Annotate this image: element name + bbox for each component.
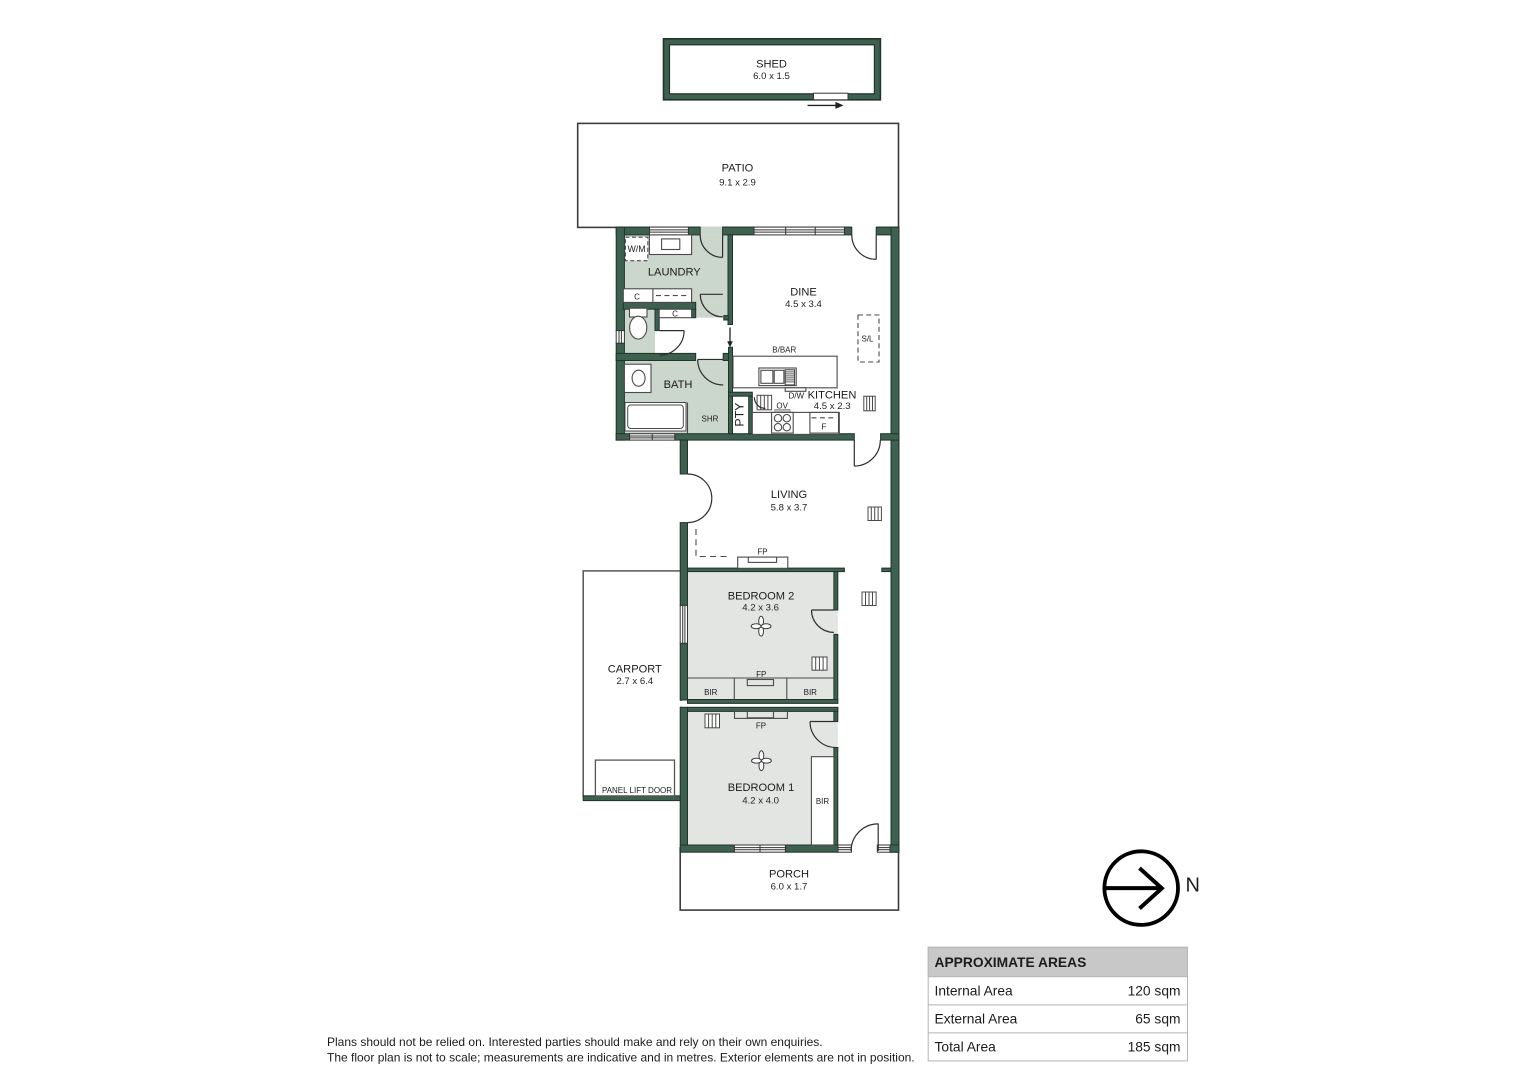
svg-text:BIR: BIR [804,688,818,697]
svg-text:6.0 x 1.5: 6.0 x 1.5 [753,71,790,82]
svg-text:B/BAR: B/BAR [772,346,796,355]
svg-text:5.8 x 3.7: 5.8 x 3.7 [771,502,808,513]
svg-text:APPROXIMATE AREAS: APPROXIMATE AREAS [935,955,1087,970]
svg-text:65 sqm: 65 sqm [1135,1012,1180,1027]
svg-text:S/L: S/L [861,335,874,344]
svg-text:2.7 x 6.4: 2.7 x 6.4 [616,676,653,687]
svg-text:SHED: SHED [756,59,787,71]
svg-text:120 sqm: 120 sqm [1128,984,1181,999]
svg-text:External Area: External Area [935,1012,1018,1027]
svg-text:6.0 x 1.7: 6.0 x 1.7 [771,881,808,892]
svg-text:F: F [822,423,827,432]
svg-text:Plans should not be relied on.: Plans should not be relied on. Intereste… [327,1035,823,1049]
svg-text:KITCHEN: KITCHEN [808,390,857,402]
svg-text:SHR: SHR [702,415,719,424]
svg-text:PATIO: PATIO [722,163,754,175]
svg-text:The floor plan is not to scale: The floor plan is not to scale; measurem… [327,1051,915,1065]
svg-text:LIVING: LIVING [771,489,807,501]
svg-text:FP: FP [756,670,766,679]
svg-text:BATH: BATH [664,379,693,391]
svg-text:4.5 x 2.3: 4.5 x 2.3 [814,401,851,412]
svg-text:Internal Area: Internal Area [935,984,1014,999]
svg-text:W/M: W/M [627,244,645,254]
svg-text:FP: FP [757,548,767,557]
svg-text:C: C [672,310,678,319]
svg-text:FP: FP [756,722,766,731]
svg-text:C: C [634,293,640,302]
svg-text:BEDROOM 2: BEDROOM 2 [728,590,795,602]
svg-text:BIR: BIR [704,688,718,697]
svg-text:Total Area: Total Area [935,1040,997,1055]
svg-text:PORCH: PORCH [769,868,809,880]
svg-text:4.5 x 3.4: 4.5 x 3.4 [785,299,822,310]
svg-text:LAUNDRY: LAUNDRY [648,267,701,279]
svg-text:4.2 x 4.0: 4.2 x 4.0 [742,795,779,806]
svg-text:D/W: D/W [789,392,805,401]
svg-text:BEDROOM 1: BEDROOM 1 [728,782,795,794]
svg-text:BIR: BIR [816,797,830,806]
svg-text:DINE: DINE [790,286,817,298]
svg-text:OV: OV [776,401,788,410]
svg-text:N: N [1185,875,1199,897]
svg-text:PTY: PTY [733,403,747,427]
svg-text:PANEL LIFT DOOR: PANEL LIFT DOOR [602,786,672,795]
svg-text:CARPORT: CARPORT [608,663,662,675]
svg-text:185 sqm: 185 sqm [1128,1040,1181,1055]
svg-text:4.2 x 3.6: 4.2 x 3.6 [742,603,779,614]
svg-text:9.1 x 2.9: 9.1 x 2.9 [719,178,756,189]
